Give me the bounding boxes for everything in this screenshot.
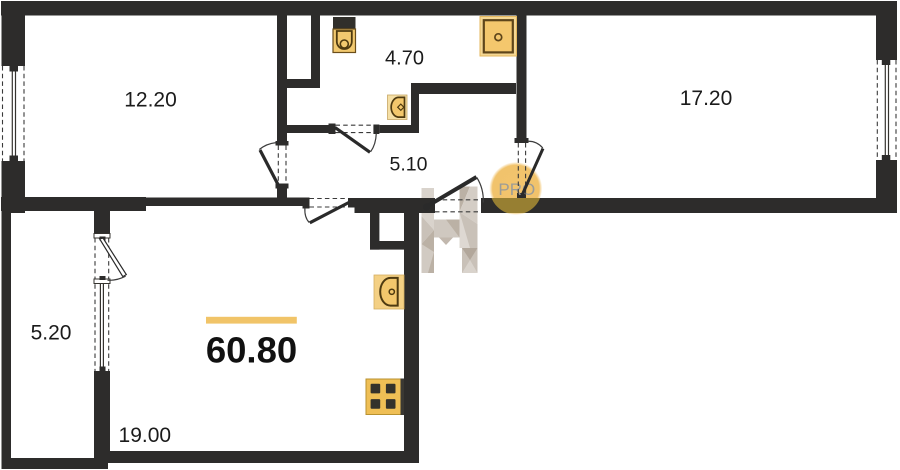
svg-text:5.20: 5.20	[31, 322, 72, 345]
svg-text:PRO: PRO	[498, 180, 535, 199]
svg-text:17.20: 17.20	[680, 87, 733, 110]
svg-text:4.70: 4.70	[385, 48, 424, 70]
svg-text:60.80: 60.80	[206, 330, 297, 371]
svg-text:12.20: 12.20	[124, 89, 177, 112]
svg-text:5.10: 5.10	[390, 154, 428, 176]
svg-text:19.00: 19.00	[119, 424, 172, 447]
